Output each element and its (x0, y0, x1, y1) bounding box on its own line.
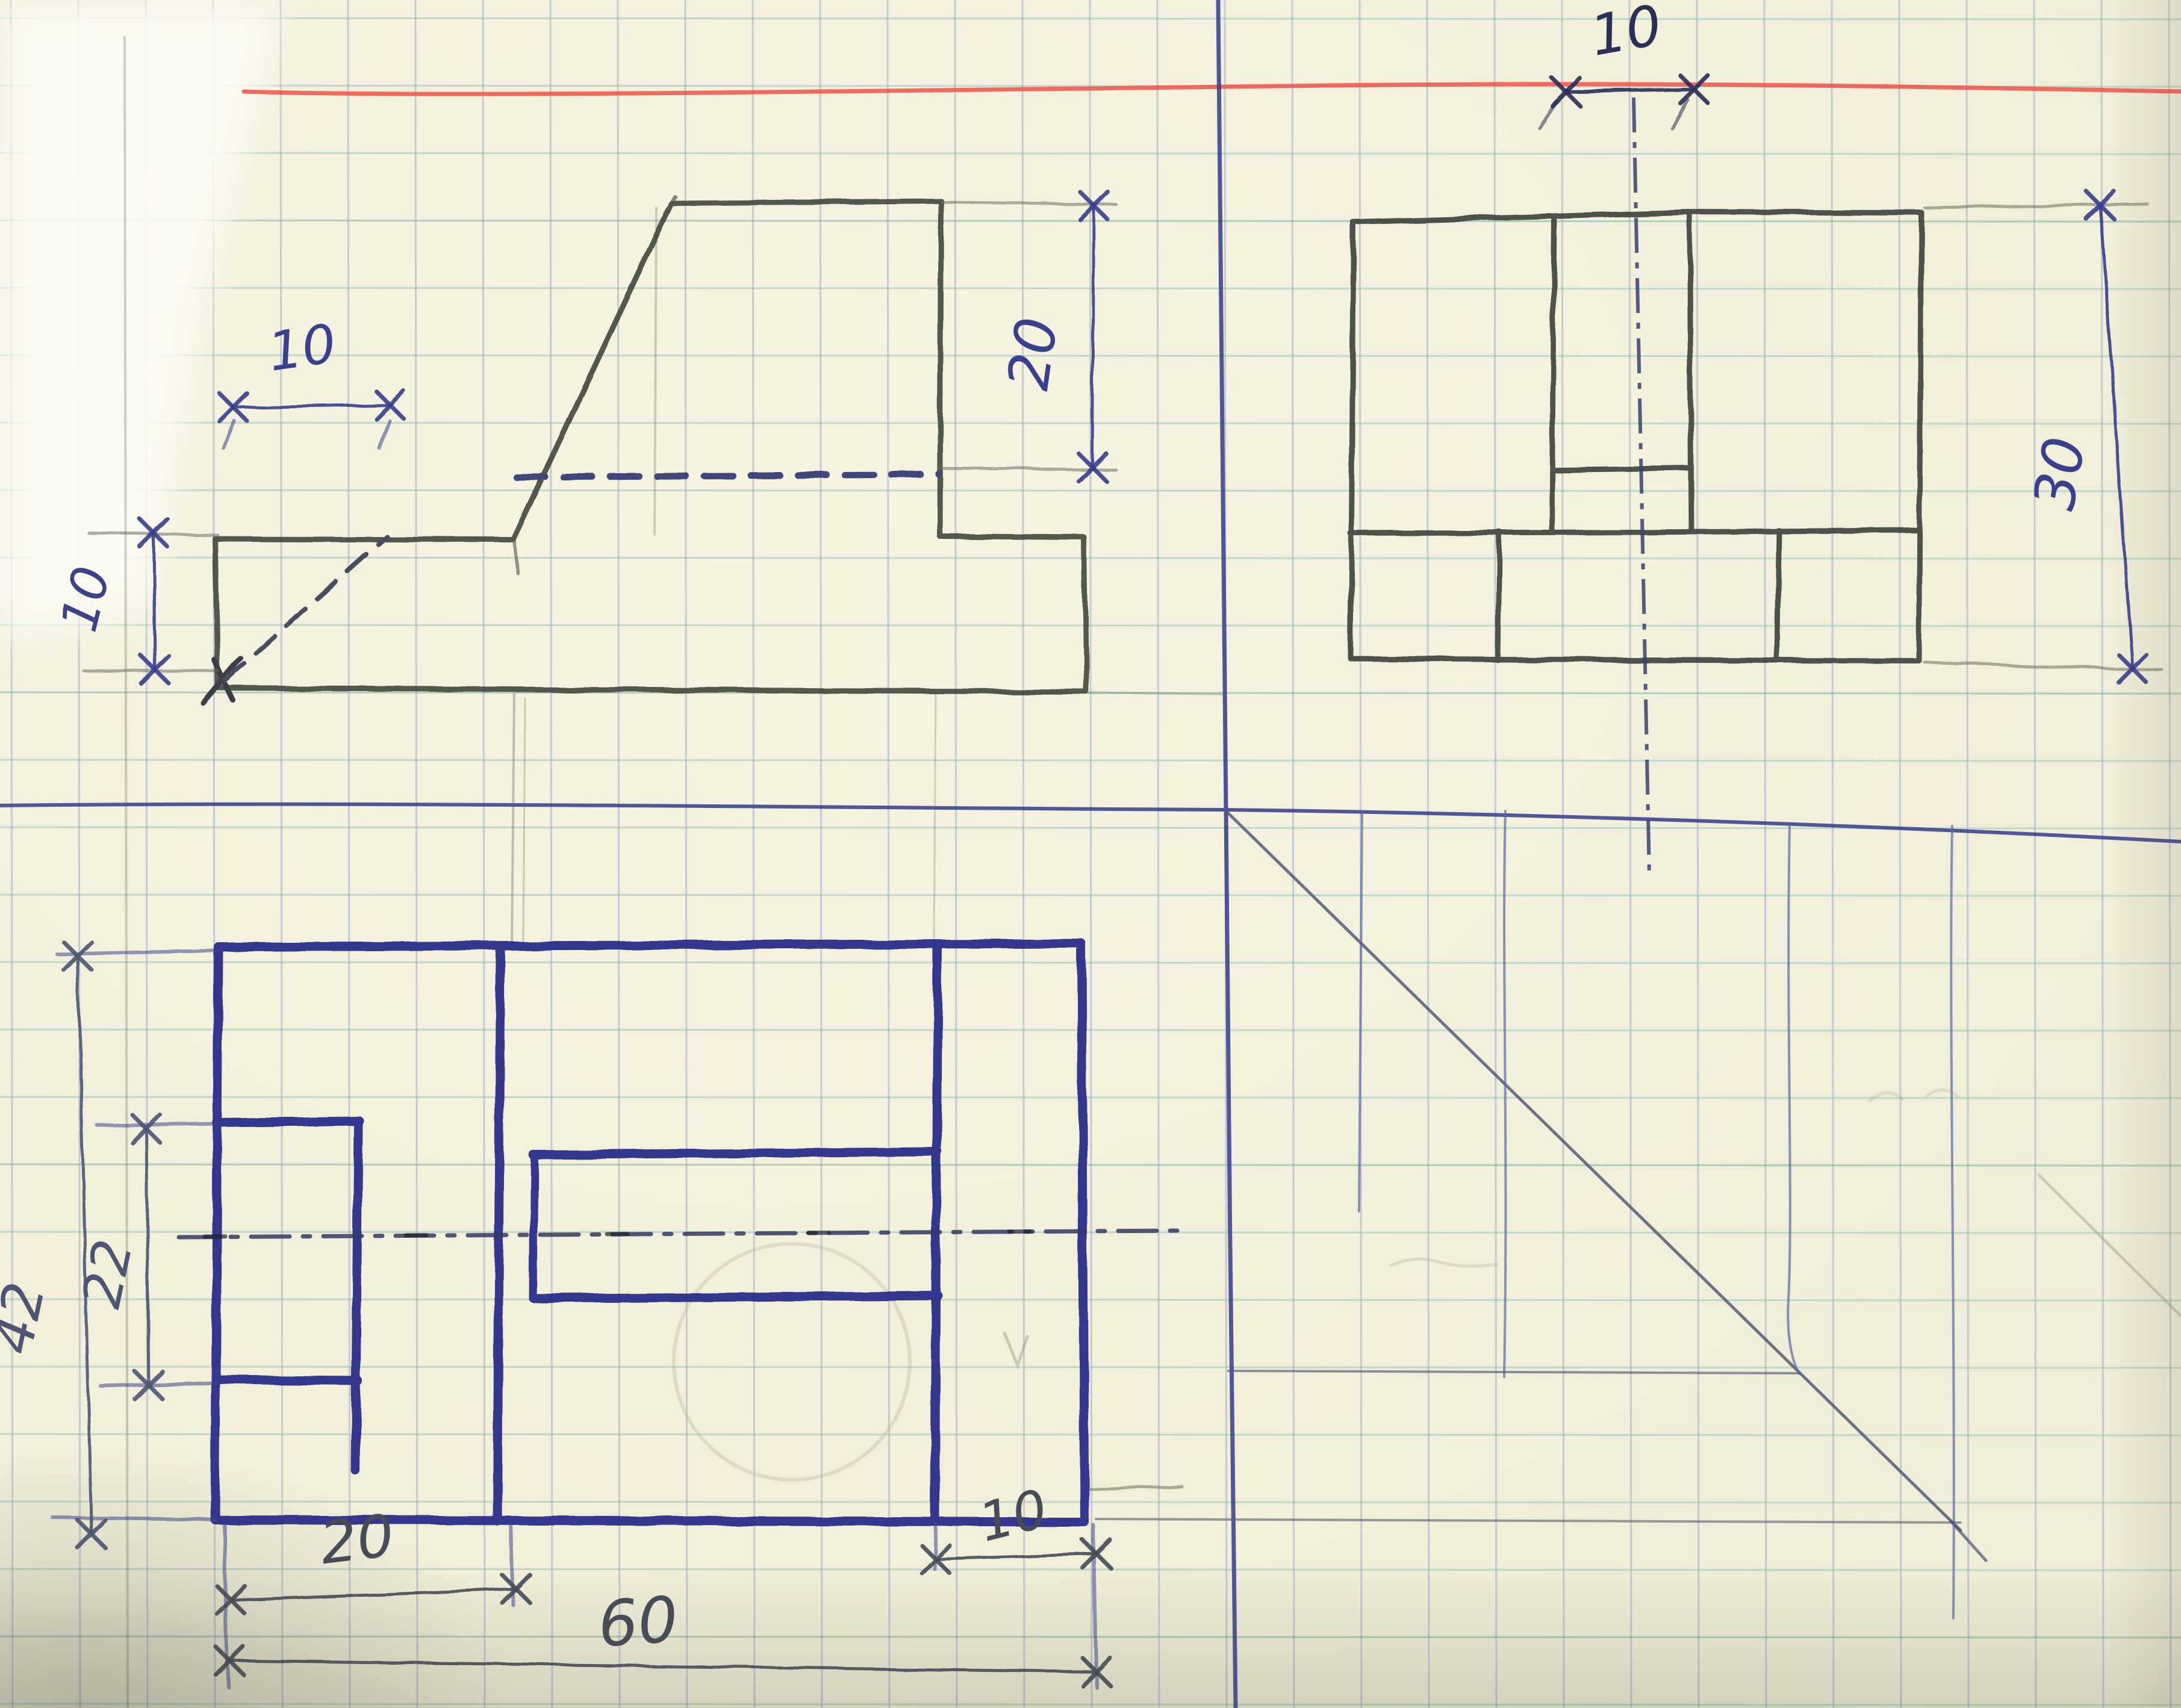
lower-edge (1777, 530, 1779, 660)
slot-right-edge (1690, 213, 1691, 530)
drawing-canvas: 10 10 20 10 30 42 22 20 60 10 (0, 0, 2181, 1708)
grid-line-horizontal (0, 962, 2181, 963)
slot-bottom-edge (1554, 468, 1690, 470)
slot-footprint-left (533, 1155, 534, 1299)
dim-label-front-right-20: 20 (996, 314, 1071, 394)
small-pocket-bottom (217, 1380, 358, 1381)
lower-edge (1498, 532, 1499, 660)
grid-line-horizontal (0, 288, 2181, 289)
corner-shadow (0, 1385, 542, 1708)
projection-line (1504, 811, 1505, 1377)
slot-footprint-top (533, 1152, 938, 1155)
grid-line-horizontal (0, 625, 2181, 626)
edge-shadow (2108, 0, 2181, 1708)
hidden-line-dashed (516, 474, 939, 477)
notebook-page: 10 10 20 10 30 42 22 20 60 10 (0, 0, 2181, 1708)
extension-line (98, 1124, 217, 1126)
grid-line-horizontal (0, 153, 2181, 154)
grid-line-horizontal (0, 1299, 2181, 1300)
grid-line-horizontal (0, 423, 2181, 424)
grid-line-horizontal (0, 18, 2181, 19)
dim-label-front-top-10: 10 (264, 312, 340, 384)
grid-line-horizontal (0, 1232, 2181, 1233)
grid-line-horizontal (0, 490, 2181, 491)
shoulder-line (1351, 530, 1920, 533)
grid-line-horizontal (0, 760, 2181, 761)
slot-footprint-bottom (534, 1296, 938, 1299)
dimension-line (154, 533, 155, 669)
grid-line-horizontal (0, 1367, 2181, 1368)
dim-label-side-right-30: 30 (2021, 432, 2099, 515)
dim-label-side-top-10: 10 (1586, 0, 1667, 69)
dimension-line (1092, 205, 1094, 467)
grid-line-horizontal (0, 220, 2181, 222)
small-pocket-top (217, 1121, 359, 1123)
grid-line-horizontal (0, 1164, 2181, 1166)
grid-line-horizontal (0, 1097, 2181, 1098)
grid-line-horizontal (0, 1029, 2181, 1031)
grid-line-horizontal (0, 895, 2181, 896)
grid-line-horizontal (0, 557, 2181, 559)
slot-left-edge (1552, 217, 1554, 530)
